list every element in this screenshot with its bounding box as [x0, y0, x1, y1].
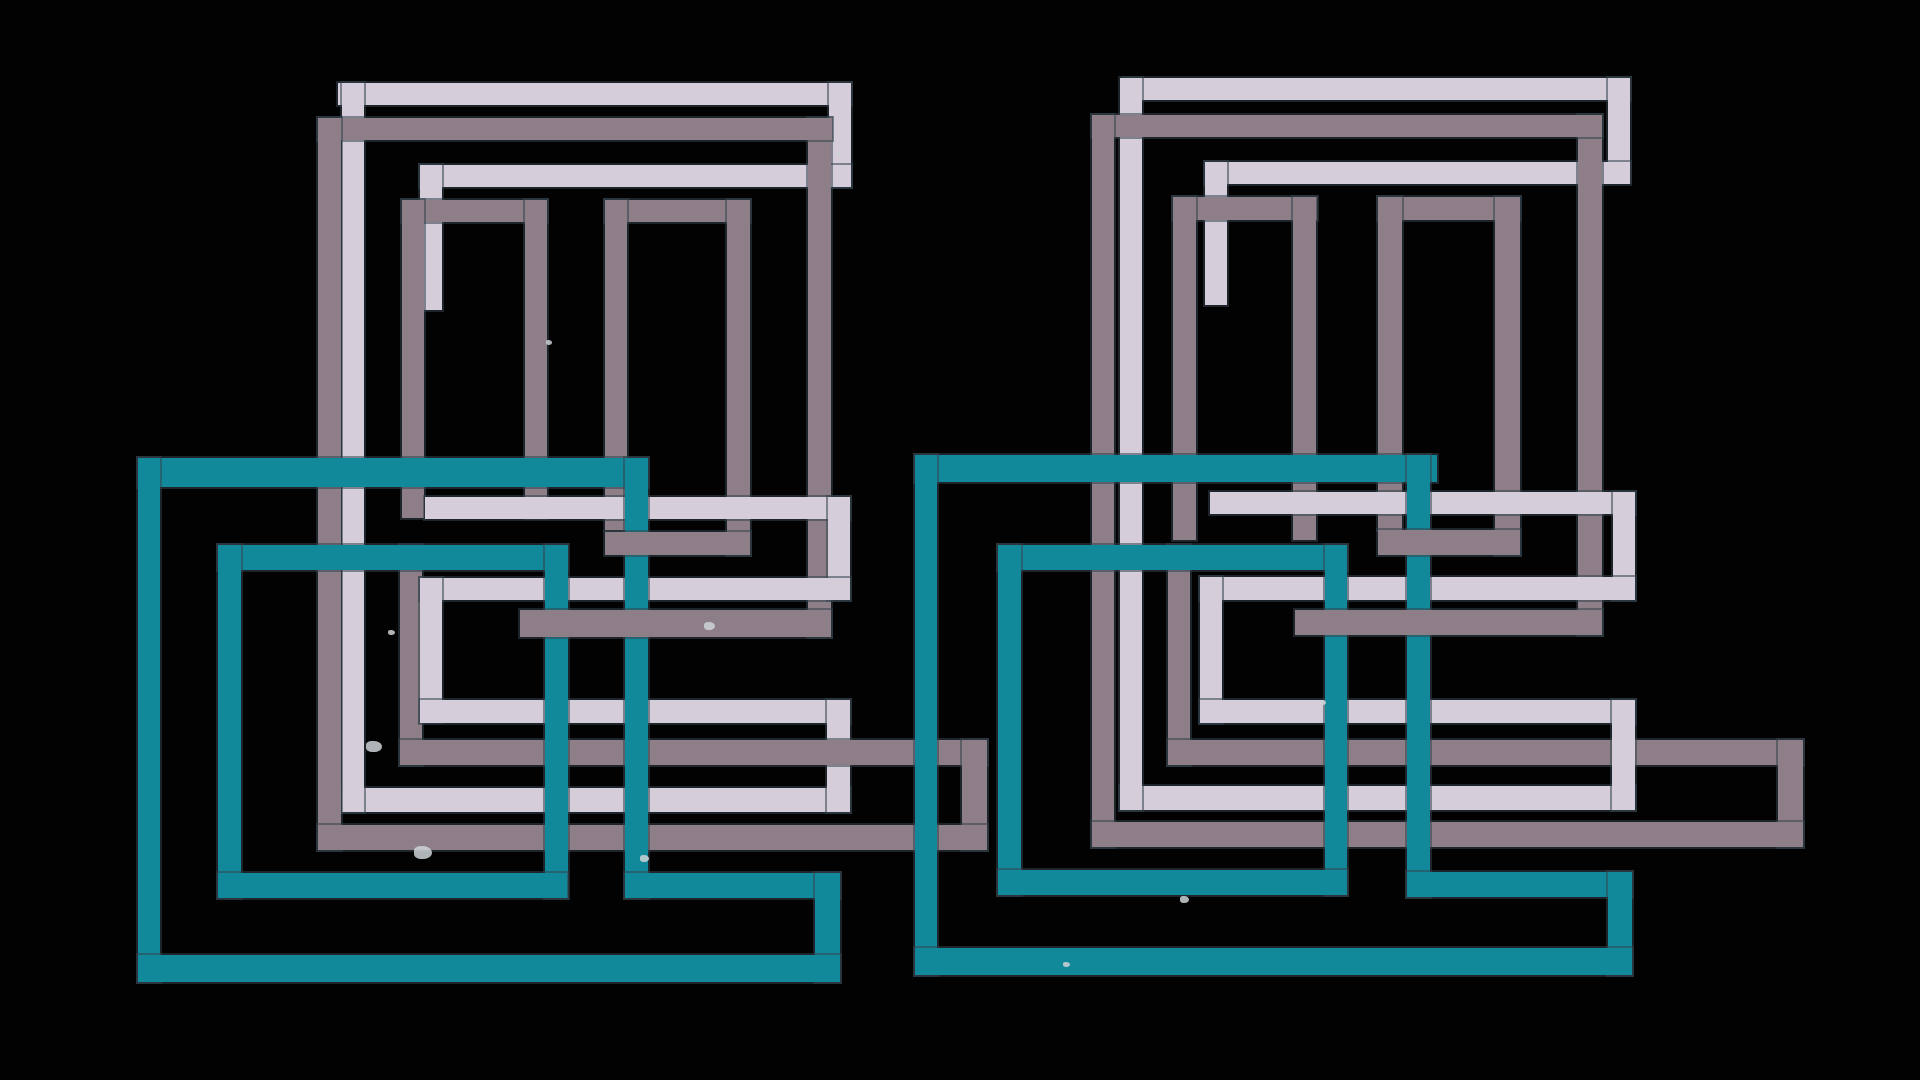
right-mauve-hook-h1 — [1168, 740, 1803, 765]
left-teal-inner-left — [218, 545, 241, 898]
noise-speckle — [414, 846, 432, 859]
noise-speckle — [1180, 896, 1189, 903]
right-lavender-mid-v-3 — [1612, 700, 1635, 810]
right-mauve-ring-bottom — [1295, 610, 1602, 635]
right-teal-outer-bottom — [915, 948, 1632, 975]
left-mauve-outer-top — [318, 118, 832, 140]
right-lavender-bottom-band — [1120, 786, 1635, 810]
right-teal-outer-left — [915, 455, 937, 975]
right-teal-outer-right — [1407, 455, 1430, 897]
abstract-artwork-canvas — [0, 0, 1920, 1080]
right-teal-outer-top — [915, 455, 1437, 482]
noise-speckle — [388, 630, 395, 635]
right-mauve-hook-v1 — [1168, 545, 1190, 765]
left-mauve-hook-v1 — [400, 545, 422, 765]
right-teal-inner-bottom — [998, 870, 1347, 895]
left-teal-outer-right — [625, 458, 648, 898]
left-mauve-ring-bottom — [520, 610, 831, 637]
noise-speckle — [836, 152, 841, 156]
noise-speckle — [366, 741, 382, 752]
noise-speckle — [1063, 962, 1070, 967]
left-lavender-outer-top — [338, 83, 851, 105]
left-mauve-door2-bottom — [605, 532, 750, 555]
left-teal-step-h — [625, 873, 840, 898]
right-mauve-hook-h2 — [1092, 822, 1803, 847]
left-lavender-second-top — [420, 165, 851, 187]
left-teal-outer-top — [138, 458, 648, 487]
right-mauve-outer-right — [1578, 115, 1602, 635]
right-mauve-door1-left — [1173, 197, 1196, 540]
noise-speckle — [546, 340, 552, 345]
noise-speckle — [640, 855, 649, 862]
left-mauve-hook-h1 — [400, 740, 987, 765]
left-teal-outer-bottom — [138, 955, 840, 982]
right-teal-step-h — [1407, 872, 1632, 897]
right-lavender-second-top — [1205, 162, 1630, 184]
left-lavender-outer-left — [342, 83, 364, 812]
right-teal-inner-right — [1325, 545, 1347, 895]
left-teal-inner-right — [545, 545, 568, 898]
noise-speckle — [704, 622, 715, 630]
right-mauve-door1-right — [1293, 197, 1316, 540]
left-lavender-bottom-band — [342, 788, 850, 812]
left-teal-inner-bottom — [218, 873, 567, 898]
left-teal-outer-left — [138, 458, 160, 982]
right-lavender-second-leg — [1205, 162, 1227, 305]
right-teal-inner-top — [998, 545, 1347, 570]
noise-speckle — [1320, 700, 1326, 705]
right-lavender-outer-top — [1123, 78, 1630, 100]
right-teal-inner-left — [998, 545, 1021, 895]
right-lavender-outer-left — [1120, 78, 1142, 810]
left-teal-inner-top — [218, 545, 567, 570]
right-mauve-outer-top — [1092, 115, 1602, 137]
right-mauve-door2-bottom — [1378, 530, 1520, 555]
